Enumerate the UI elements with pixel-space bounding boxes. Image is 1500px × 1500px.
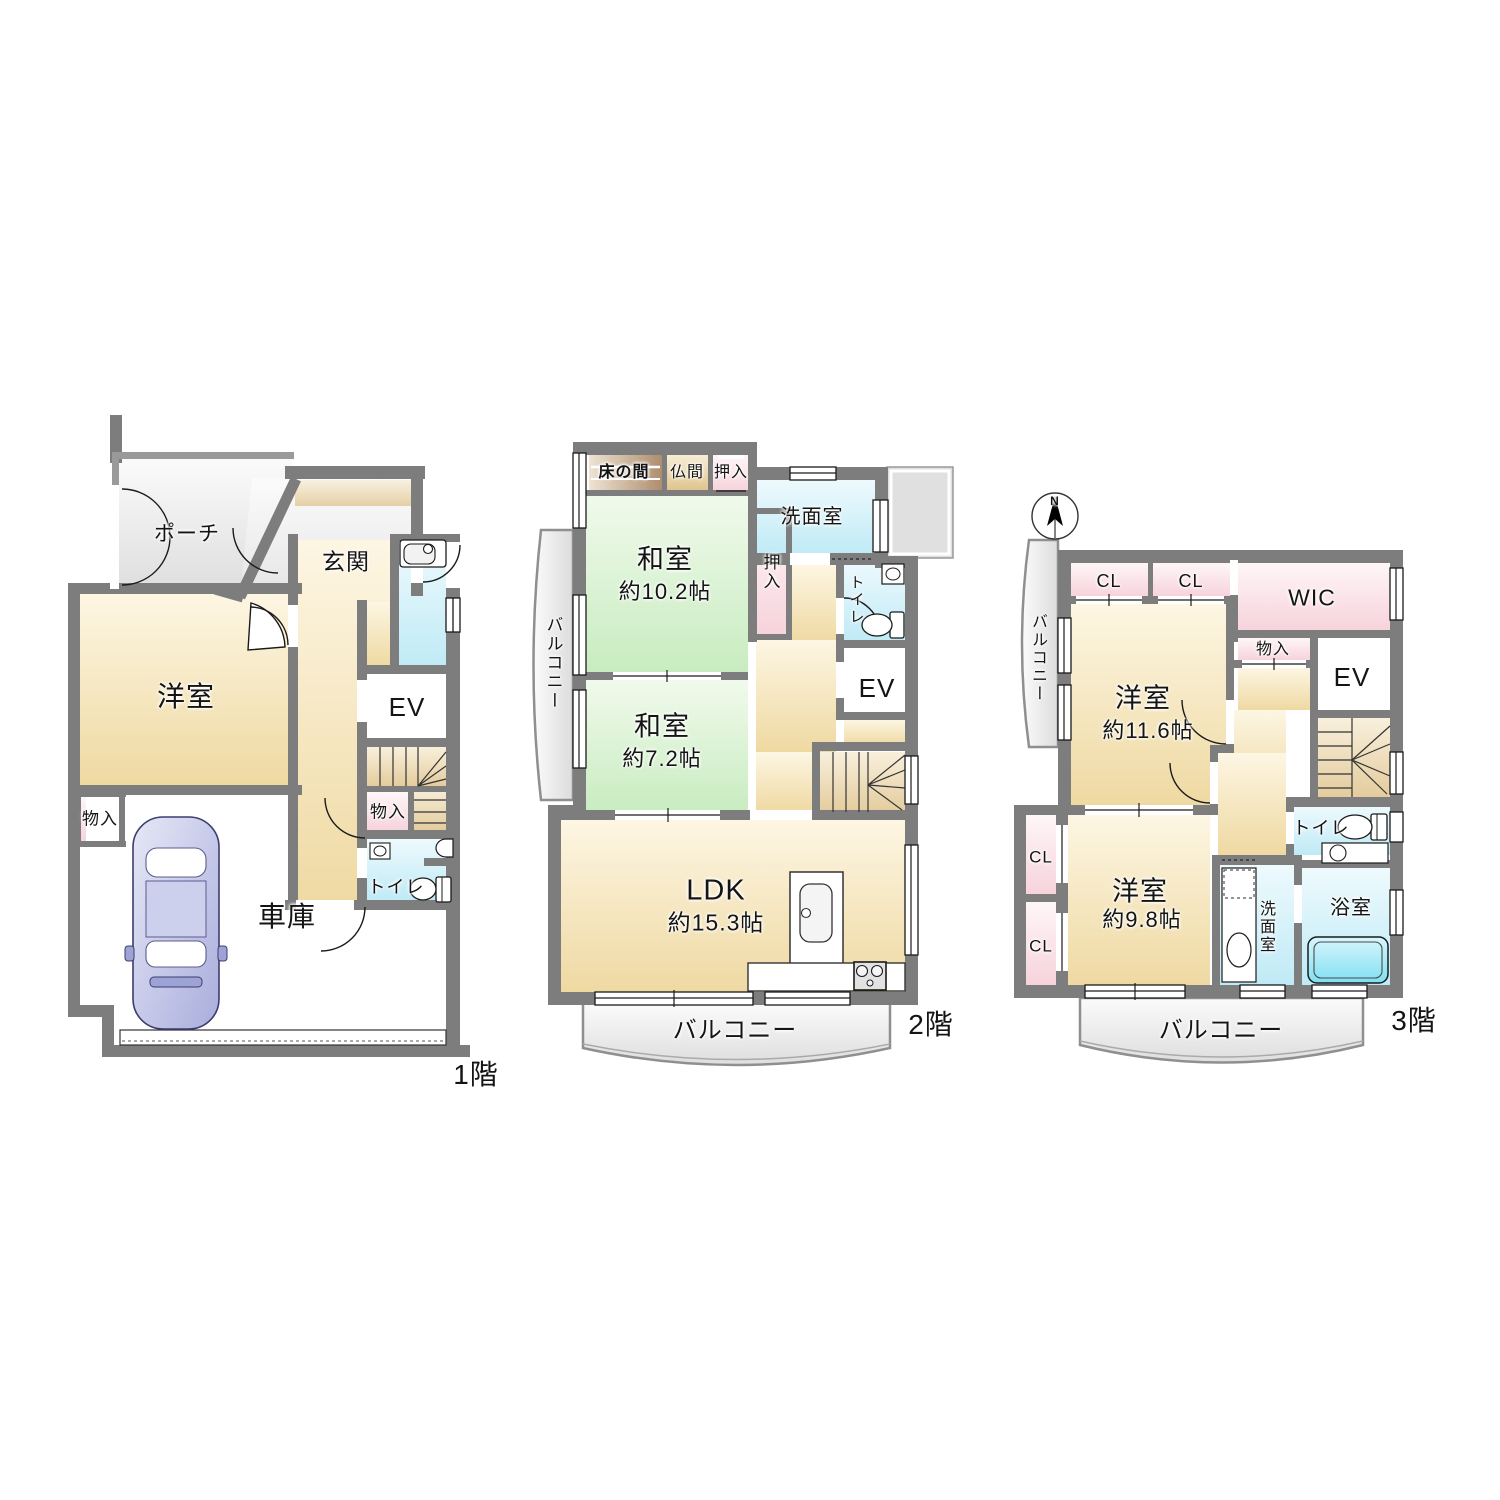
room-label-genkan-1f: 玄関 [322, 551, 370, 574]
room-label-elevator-1f: EV [389, 694, 426, 720]
room-size-ldk-2f: 約15.3帖 [668, 912, 765, 935]
basin-counter-icon-1f [400, 540, 446, 567]
room-label-washroom-2f: 洗面室 [781, 507, 844, 527]
room-label-tokonoma-2f: 床の間 [598, 465, 649, 481]
washroom-icons-3f [1222, 868, 1256, 982]
faucet-icon [802, 909, 811, 918]
room-label-toilet-3f: トイレ [1293, 819, 1350, 837]
balcony-label-3f: バルコニー [1159, 1019, 1284, 1043]
hand-sink-icon [370, 843, 390, 859]
room-label-garage-1f: 車庫 [258, 903, 316, 931]
room-label-toilet-1f: トイレ [368, 878, 425, 896]
roof-box-2f [887, 467, 953, 558]
balcony-label-2f: バルコニー [673, 1019, 798, 1043]
bathtub-icon [1308, 937, 1388, 983]
room-label-elevator-2f: EV [859, 675, 896, 701]
room-size-washitsu1-2f: 約10.2帖 [619, 581, 712, 603]
toilet-bowl-icon [862, 614, 892, 636]
floor-label-1f: 1階 [453, 1061, 499, 1089]
floor-plan-page: ポーチ 玄関 洋室 EV 物入 物入 トイレ 車庫 1階 床の間 仏間 押入 和… [0, 0, 1500, 1500]
room-label-storage-right-1f: 物入 [370, 804, 406, 821]
room-label-closet3-3f: CL [1029, 849, 1053, 866]
room-label-closet4-3f: CL [1029, 938, 1053, 955]
toilet-sink-counter [1322, 843, 1388, 863]
room-size-washitsu2-2f: 約7.2帖 [622, 748, 702, 770]
room-label-western1-3f: 洋室 [1115, 686, 1171, 713]
room-label-toilet-2f: トイレ [849, 575, 864, 626]
balcony-left-label-2f: バルコニー [545, 616, 562, 711]
room-label-washroom-3f: 洗面室 [1257, 900, 1273, 954]
room-label-storage-left-1f: 物入 [82, 811, 118, 828]
room-label-elevator-3f: EV [1334, 664, 1371, 690]
room-label-porch-1f: ポーチ [154, 524, 220, 545]
vanity-counter [1222, 868, 1256, 982]
room-size-western2-3f: 約9.8帖 [1102, 909, 1182, 931]
room-label-washitsu1-2f: 和室 [637, 547, 693, 574]
room-label-closet2-3f: CL [1178, 572, 1203, 590]
room-size-western1-3f: 約11.6帖 [1102, 720, 1193, 742]
room-label-storage-3f: 物入 [1256, 642, 1290, 658]
car-icon [125, 817, 227, 1029]
room-label-oshiire-2f: 押入 [762, 553, 779, 591]
room-label-butsuma-2f: 仏間 [670, 465, 704, 481]
room-label-ldk-2f: LDK [686, 877, 745, 906]
room-label-closet1-3f: CL [1096, 572, 1121, 590]
floor-label-2f: 2階 [908, 1011, 954, 1039]
compass-north-label: N [1050, 495, 1060, 507]
room-label-oshiire-top-2f: 押入 [714, 465, 748, 481]
corner-sink-icon [882, 564, 904, 584]
urinal-icon [436, 839, 453, 857]
floor-label-3f: 3階 [1391, 1007, 1437, 1035]
toilet-tank-icon [1371, 814, 1387, 840]
floor3-plan [1014, 493, 1403, 1063]
genkan-step-band [295, 480, 411, 506]
balcony-left-label-3f: バルコニー [1029, 613, 1045, 703]
floor-plan-drawing [0, 0, 1500, 1500]
room-label-wic-3f: WIC [1288, 587, 1336, 610]
floor2-plan [534, 442, 954, 1065]
floor1-plan [68, 415, 470, 1057]
toilet-tank-icon [436, 877, 451, 902]
room-label-western2-3f: 洋室 [1112, 879, 1168, 906]
room-label-washitsu2-2f: 和室 [634, 714, 690, 741]
room-label-bathroom-3f: 浴室 [1330, 898, 1372, 918]
room-label-western-1f: 洋室 [157, 683, 215, 711]
